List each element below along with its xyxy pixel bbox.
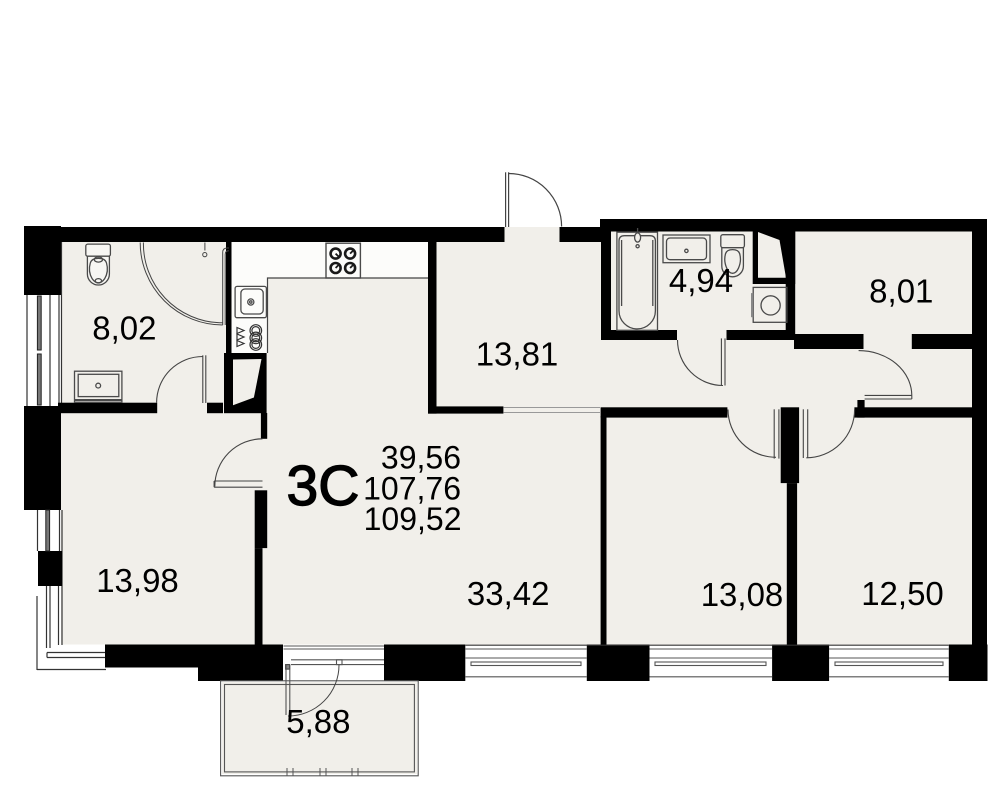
svg-text:4,94: 4,94 (669, 262, 733, 299)
svg-text:8,01: 8,01 (869, 273, 933, 310)
svg-text:5,88: 5,88 (286, 703, 350, 740)
svg-text:13,98: 13,98 (96, 562, 179, 599)
svg-text:8,02: 8,02 (92, 310, 156, 347)
svg-text:3С: 3С (287, 454, 360, 518)
svg-text:13,81: 13,81 (476, 336, 559, 373)
svg-text:109,52: 109,52 (364, 501, 462, 537)
svg-text:13,08: 13,08 (701, 576, 784, 613)
svg-text:12,50: 12,50 (861, 575, 944, 612)
svg-text:33,42: 33,42 (467, 575, 550, 612)
